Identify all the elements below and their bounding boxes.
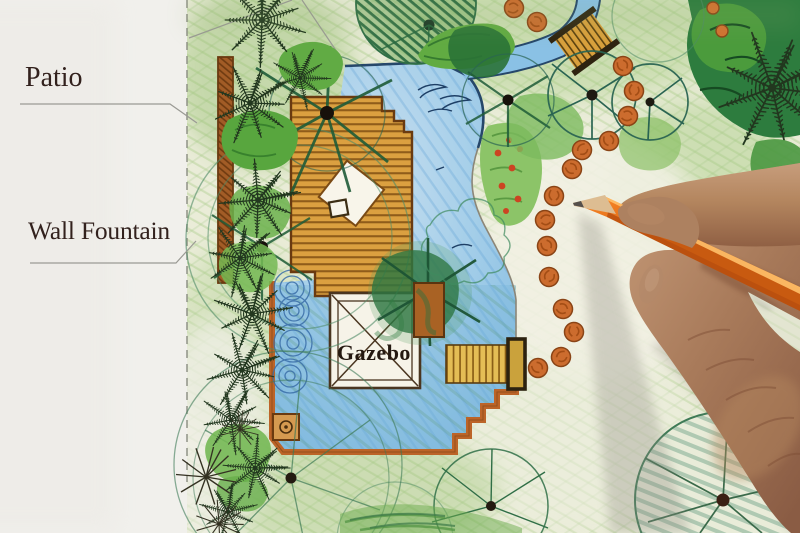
svg-text:Patio: Patio	[25, 62, 83, 93]
svg-text:Wall Fountain: Wall Fountain	[28, 216, 170, 245]
svg-text:Gazebo: Gazebo	[337, 340, 411, 365]
